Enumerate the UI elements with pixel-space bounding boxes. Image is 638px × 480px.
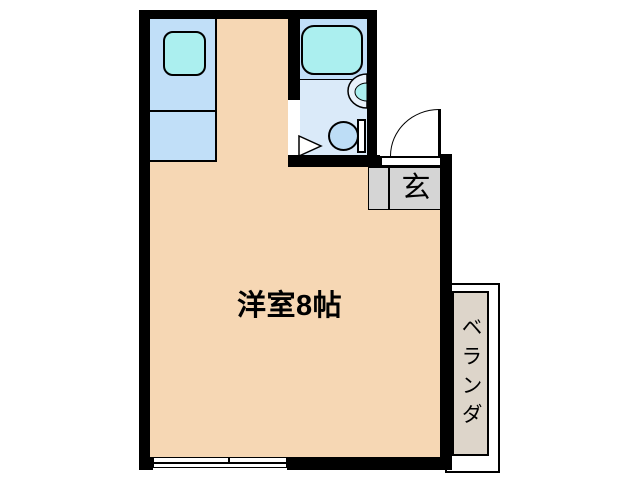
toilet-tank-icon xyxy=(357,119,366,153)
wall-top xyxy=(139,10,377,19)
floorplan-canvas: 玄 ベランダ 洋室8帖 xyxy=(0,0,638,480)
balcony-label: ベランダ xyxy=(460,316,481,432)
bathroom-doorway xyxy=(288,100,300,155)
kitchen-counter-divider xyxy=(150,110,215,112)
entrance-door-leaf-icon xyxy=(438,109,441,157)
bathroom-wall-left xyxy=(288,10,300,100)
toilet-bowl-icon xyxy=(328,121,359,151)
sliding-window-tick xyxy=(228,458,230,464)
wall-bottom xyxy=(287,457,452,470)
main-room-label: 洋室8帖 xyxy=(237,292,342,321)
bathroom-wall-right xyxy=(367,10,377,167)
bathtub-icon xyxy=(301,25,363,75)
entrance-door-threshold xyxy=(380,156,442,167)
bathroom-floor-divider xyxy=(300,79,367,80)
balcony-floor: ベランダ xyxy=(452,291,489,456)
kitchen-sink-icon xyxy=(163,31,206,76)
sliding-window-track xyxy=(153,462,287,464)
wall-left xyxy=(139,10,150,470)
wall-bottom-left xyxy=(139,457,153,470)
entrance-label: 玄 xyxy=(389,167,443,210)
